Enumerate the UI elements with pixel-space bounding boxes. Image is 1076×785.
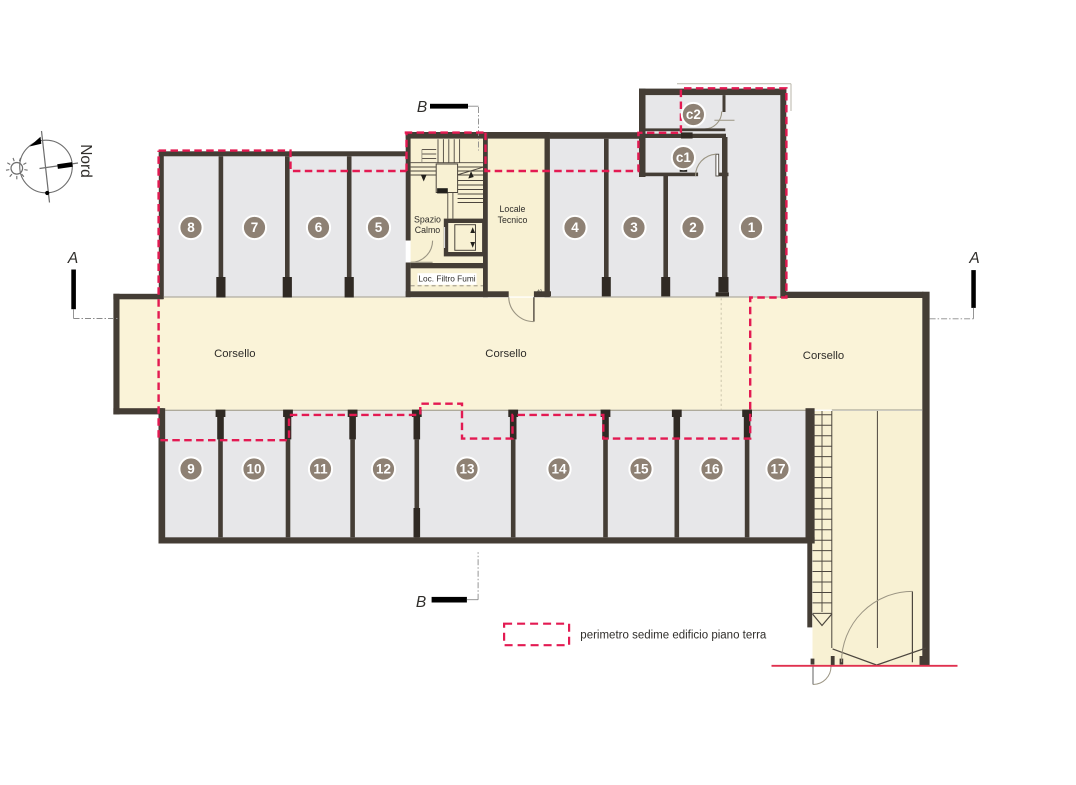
svg-text:perimetro sedime edificio pian: perimetro sedime edificio piano terra xyxy=(580,630,767,642)
svg-text:16: 16 xyxy=(704,462,720,477)
svg-text:Tecnico: Tecnico xyxy=(498,215,528,225)
svg-text:13: 13 xyxy=(459,462,475,477)
svg-text:6: 6 xyxy=(315,220,323,235)
svg-text:Corsello: Corsello xyxy=(485,348,526,360)
svg-text:7: 7 xyxy=(251,220,259,235)
svg-text:15: 15 xyxy=(633,462,649,477)
svg-text:14: 14 xyxy=(551,462,567,477)
svg-text:40: 40 xyxy=(537,289,543,294)
svg-text:17: 17 xyxy=(770,462,785,477)
svg-text:Spazio: Spazio xyxy=(414,215,441,225)
svg-text:9: 9 xyxy=(187,462,195,477)
svg-text:Nord: Nord xyxy=(77,144,94,178)
svg-text:10: 10 xyxy=(246,462,261,477)
svg-text:B: B xyxy=(416,594,426,611)
svg-text:4: 4 xyxy=(571,220,579,235)
svg-text:1: 1 xyxy=(748,220,756,235)
svg-text:2: 2 xyxy=(689,220,697,235)
svg-text:Loc. Filtro Fumi: Loc. Filtro Fumi xyxy=(418,274,475,284)
svg-text:Calmo: Calmo xyxy=(415,225,441,235)
svg-text:Locale: Locale xyxy=(500,204,526,214)
svg-text:c2: c2 xyxy=(686,107,701,122)
svg-text:3: 3 xyxy=(630,220,638,235)
svg-text:A: A xyxy=(67,250,78,267)
svg-text:5: 5 xyxy=(375,220,383,235)
svg-text:11: 11 xyxy=(313,462,328,477)
svg-text:c1: c1 xyxy=(676,150,692,165)
svg-text:Corsello: Corsello xyxy=(214,348,255,360)
svg-text:B: B xyxy=(417,99,427,116)
svg-text:A: A xyxy=(968,250,979,267)
svg-text:12: 12 xyxy=(376,462,391,477)
svg-text:8: 8 xyxy=(187,220,195,235)
svg-text:Corsello: Corsello xyxy=(803,350,844,362)
